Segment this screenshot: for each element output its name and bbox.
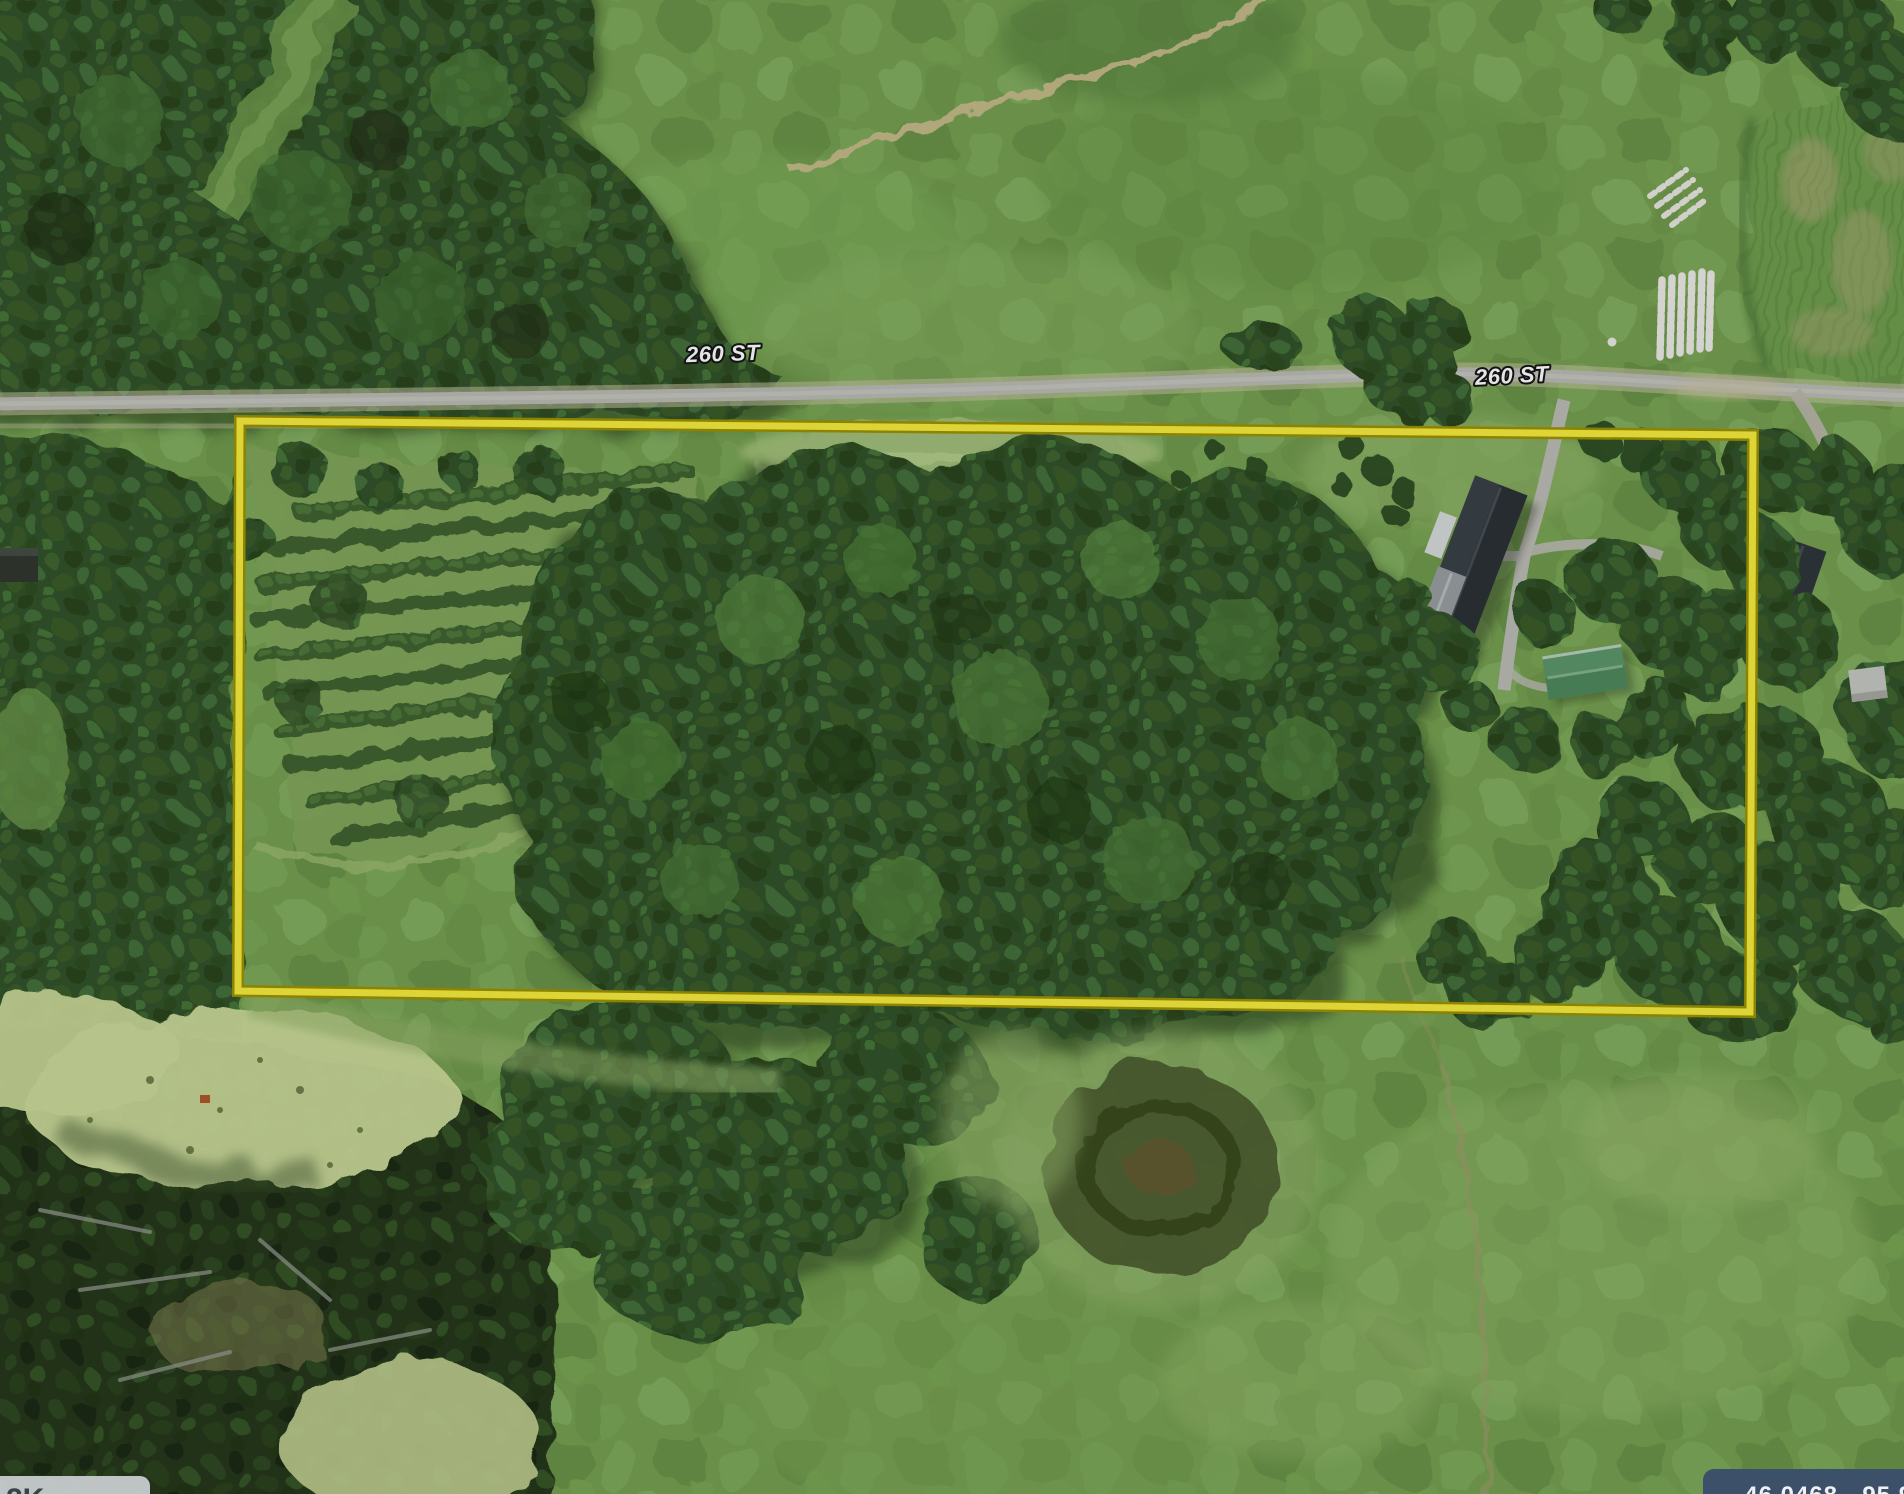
coordinates-text: 46.0468, -95.996 — [1744, 1482, 1904, 1494]
coordinates-badge: 46.0468, -95.996 — [1703, 1469, 1904, 1494]
zoom-badge[interactable]: 2K — [0, 1476, 150, 1494]
photo-grain-overlay — [0, 0, 1904, 1494]
zoom-badge-text: 2K — [6, 1483, 45, 1494]
aerial-map[interactable]: 260 ST 260 ST 46.0468, -95.996 2K — [0, 0, 1904, 1494]
